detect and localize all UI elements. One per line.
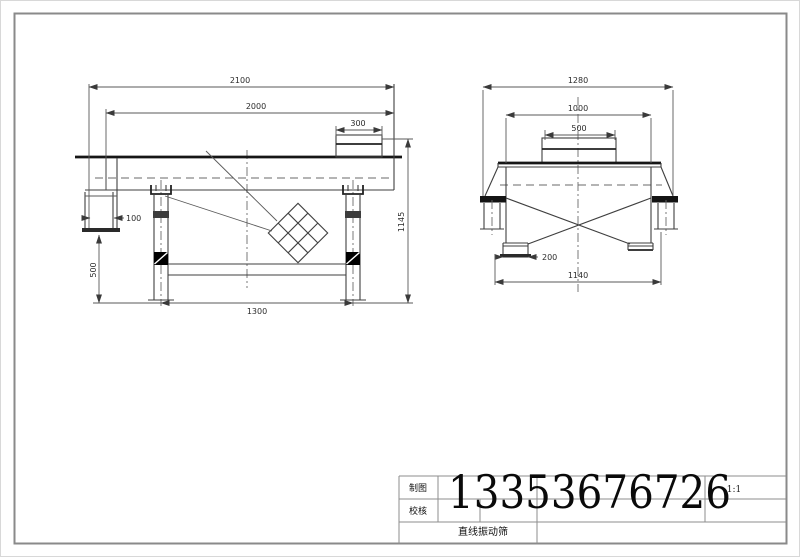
dim-label: 500	[89, 262, 98, 277]
drafted-by-label: 制图	[409, 482, 427, 494]
mesh-leader-line	[206, 151, 277, 221]
support-leg-left	[148, 180, 174, 306]
cross-beam	[168, 264, 346, 275]
dim-body-width: 1000	[506, 104, 651, 163]
part-name: 直线振动筛	[458, 525, 508, 538]
side-view: 1280 1000 500 200 1140	[480, 76, 678, 292]
sheet-border	[15, 14, 787, 544]
dim-label: 2000	[246, 102, 266, 111]
support-leg-left	[480, 200, 504, 235]
cad-drawing: 2100 2000 300 100 500	[0, 0, 800, 557]
chute-flange	[82, 228, 120, 232]
dim-label: 200	[542, 253, 557, 262]
support-leg-right	[340, 180, 366, 306]
leg-coupling	[345, 211, 361, 218]
spring-seat-right	[652, 196, 678, 203]
screen-deck	[498, 163, 661, 167]
vibration-motor	[336, 135, 382, 157]
hopper-slopes	[506, 198, 651, 244]
screen-body	[485, 167, 673, 243]
dim-motor-width: 300	[336, 119, 382, 136]
dim-body-length: 2000	[106, 102, 394, 190]
drawing-sheet: 2100 2000 300 100 500	[0, 0, 800, 557]
outlet-right	[628, 243, 653, 250]
drawing-scale: 1:1	[727, 485, 741, 495]
dim-label: 1000	[568, 104, 588, 113]
vibration-motor	[542, 138, 616, 163]
dim-outlet-width: 100	[83, 214, 141, 223]
outlet-left	[500, 243, 531, 258]
dim-label: 1300	[247, 307, 267, 316]
spring-seat-left	[480, 196, 506, 203]
dim-leg-height: 500	[89, 235, 99, 303]
dim-label: 1280	[568, 76, 588, 85]
dim-label: 300	[350, 119, 365, 128]
phone-number: 13353676726	[448, 465, 731, 519]
support-leg-right	[654, 200, 678, 235]
front-view: 2100 2000 300 100 500	[75, 76, 413, 316]
title-block: 制图 校核 直线振动筛 13353676726 1:1	[399, 465, 786, 544]
dim-leg-span: 1300	[93, 303, 413, 316]
outlet-flange	[500, 254, 531, 258]
screen-mesh-symbol	[268, 203, 327, 262]
dim-label: 100	[126, 214, 141, 223]
checked-by-label: 校核	[409, 505, 427, 517]
dim-label: 1140	[568, 271, 588, 280]
dim-total-length: 2100	[89, 76, 394, 87]
dim-label: 500	[571, 124, 586, 133]
leg-coupling	[153, 211, 169, 218]
mesh-leader-line	[165, 196, 272, 231]
dim-label: 2100	[230, 76, 250, 85]
screen-body	[85, 84, 394, 190]
dim-total-height: 1145	[382, 139, 413, 303]
dim-label: 1145	[397, 212, 406, 232]
